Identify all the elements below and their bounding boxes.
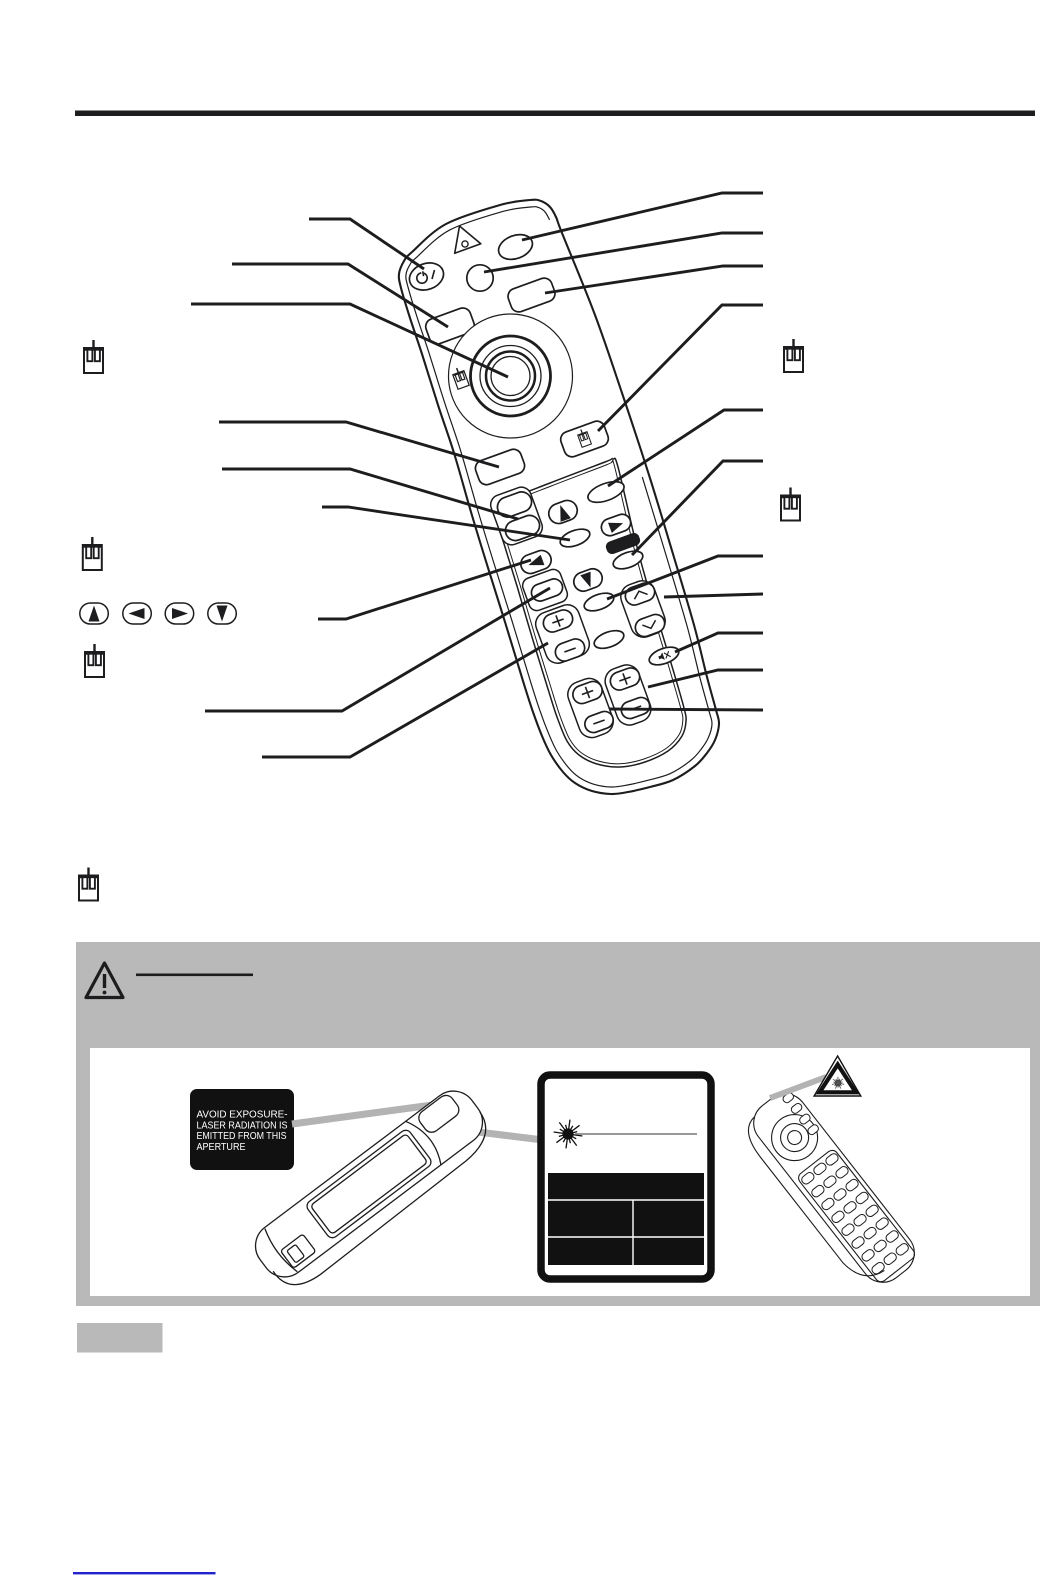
svg-text:LASER RADIATION IS: LASER RADIATION IS xyxy=(197,1121,288,1132)
svg-text:AVOID EXPOSURE-: AVOID EXPOSURE- xyxy=(197,1110,288,1121)
svg-text:APERTURE: APERTURE xyxy=(197,1142,246,1153)
svg-text:EMITTED FROM THIS: EMITTED FROM THIS xyxy=(197,1131,287,1142)
